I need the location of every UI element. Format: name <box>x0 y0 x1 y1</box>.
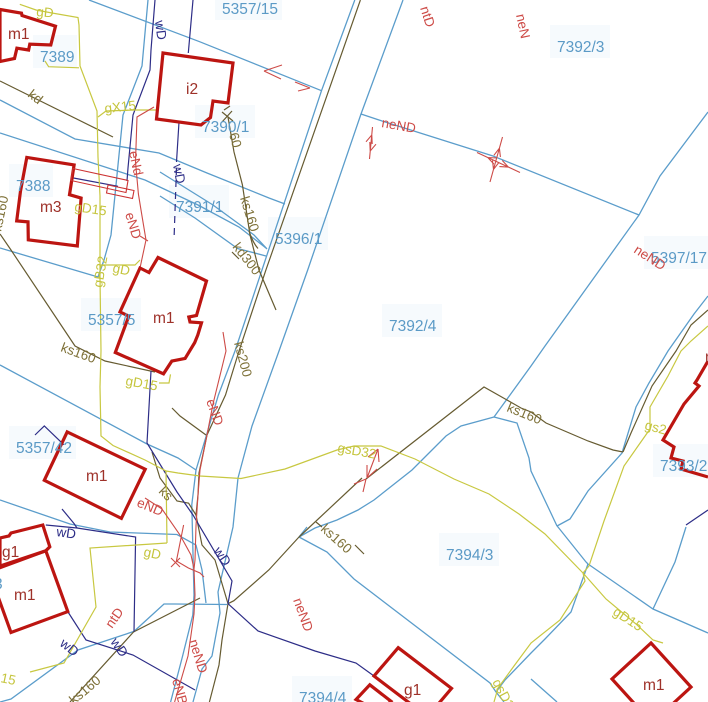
svg-text:m1: m1 <box>643 677 665 694</box>
svg-text:15: 15 <box>0 670 17 688</box>
svg-text:i2: i2 <box>186 81 198 98</box>
svg-text:7393/2: 7393/2 <box>660 458 707 475</box>
svg-text:m1: m1 <box>86 468 108 485</box>
svg-text:5396/1: 5396/1 <box>275 231 322 248</box>
svg-text:5357/15: 5357/15 <box>222 1 278 18</box>
svg-text:m1: m1 <box>14 587 36 604</box>
svg-text:g1: g1 <box>2 544 19 561</box>
svg-text:7392/3: 7392/3 <box>557 39 604 56</box>
svg-text:wD: wD <box>55 524 78 542</box>
svg-text:m1: m1 <box>8 26 30 43</box>
svg-text:m1: m1 <box>153 310 175 327</box>
svg-text:7388: 7388 <box>16 178 50 195</box>
svg-text:7394/3: 7394/3 <box>446 547 493 564</box>
svg-text:m3: m3 <box>40 199 62 216</box>
svg-text:wD: wD <box>152 19 169 41</box>
svg-text:5357/42: 5357/42 <box>16 440 72 457</box>
svg-text:7389: 7389 <box>40 49 74 66</box>
svg-text:g1: g1 <box>404 682 421 699</box>
svg-text:gD: gD <box>36 4 55 20</box>
svg-text:7394/4: 7394/4 <box>299 690 347 702</box>
svg-text:5357/5: 5357/5 <box>88 312 135 329</box>
svg-text:7392/4: 7392/4 <box>389 318 437 335</box>
svg-text:7391/1: 7391/1 <box>176 199 223 216</box>
svg-text:3: 3 <box>0 576 3 593</box>
svg-text:7390/1: 7390/1 <box>202 119 249 136</box>
